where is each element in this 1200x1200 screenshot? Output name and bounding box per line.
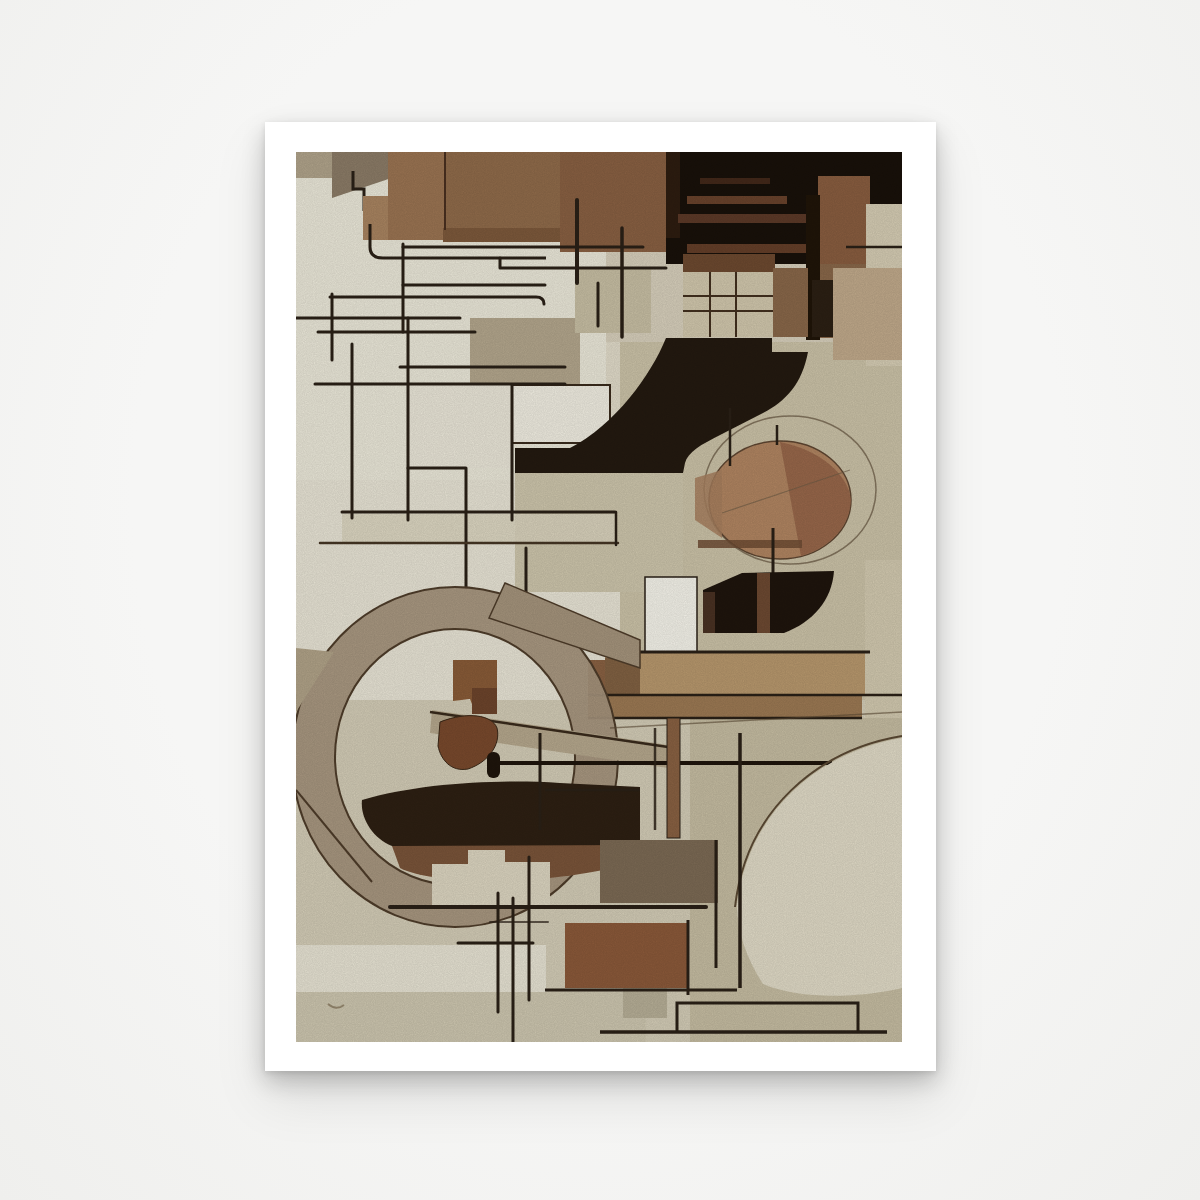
artwork-caption: Abstract cubist composition in shades of… (265, 122, 266, 123)
paper-grain-texture (296, 152, 902, 1042)
gallery-wall: Abstract cubist composition in shades of… (0, 0, 1200, 1200)
abstract-artwork (296, 152, 902, 1042)
page-background: { "scene": { "background_color": "#f4f4f… (0, 0, 1200, 1200)
poster-frame: Abstract cubist composition in shades of… (265, 122, 936, 1071)
